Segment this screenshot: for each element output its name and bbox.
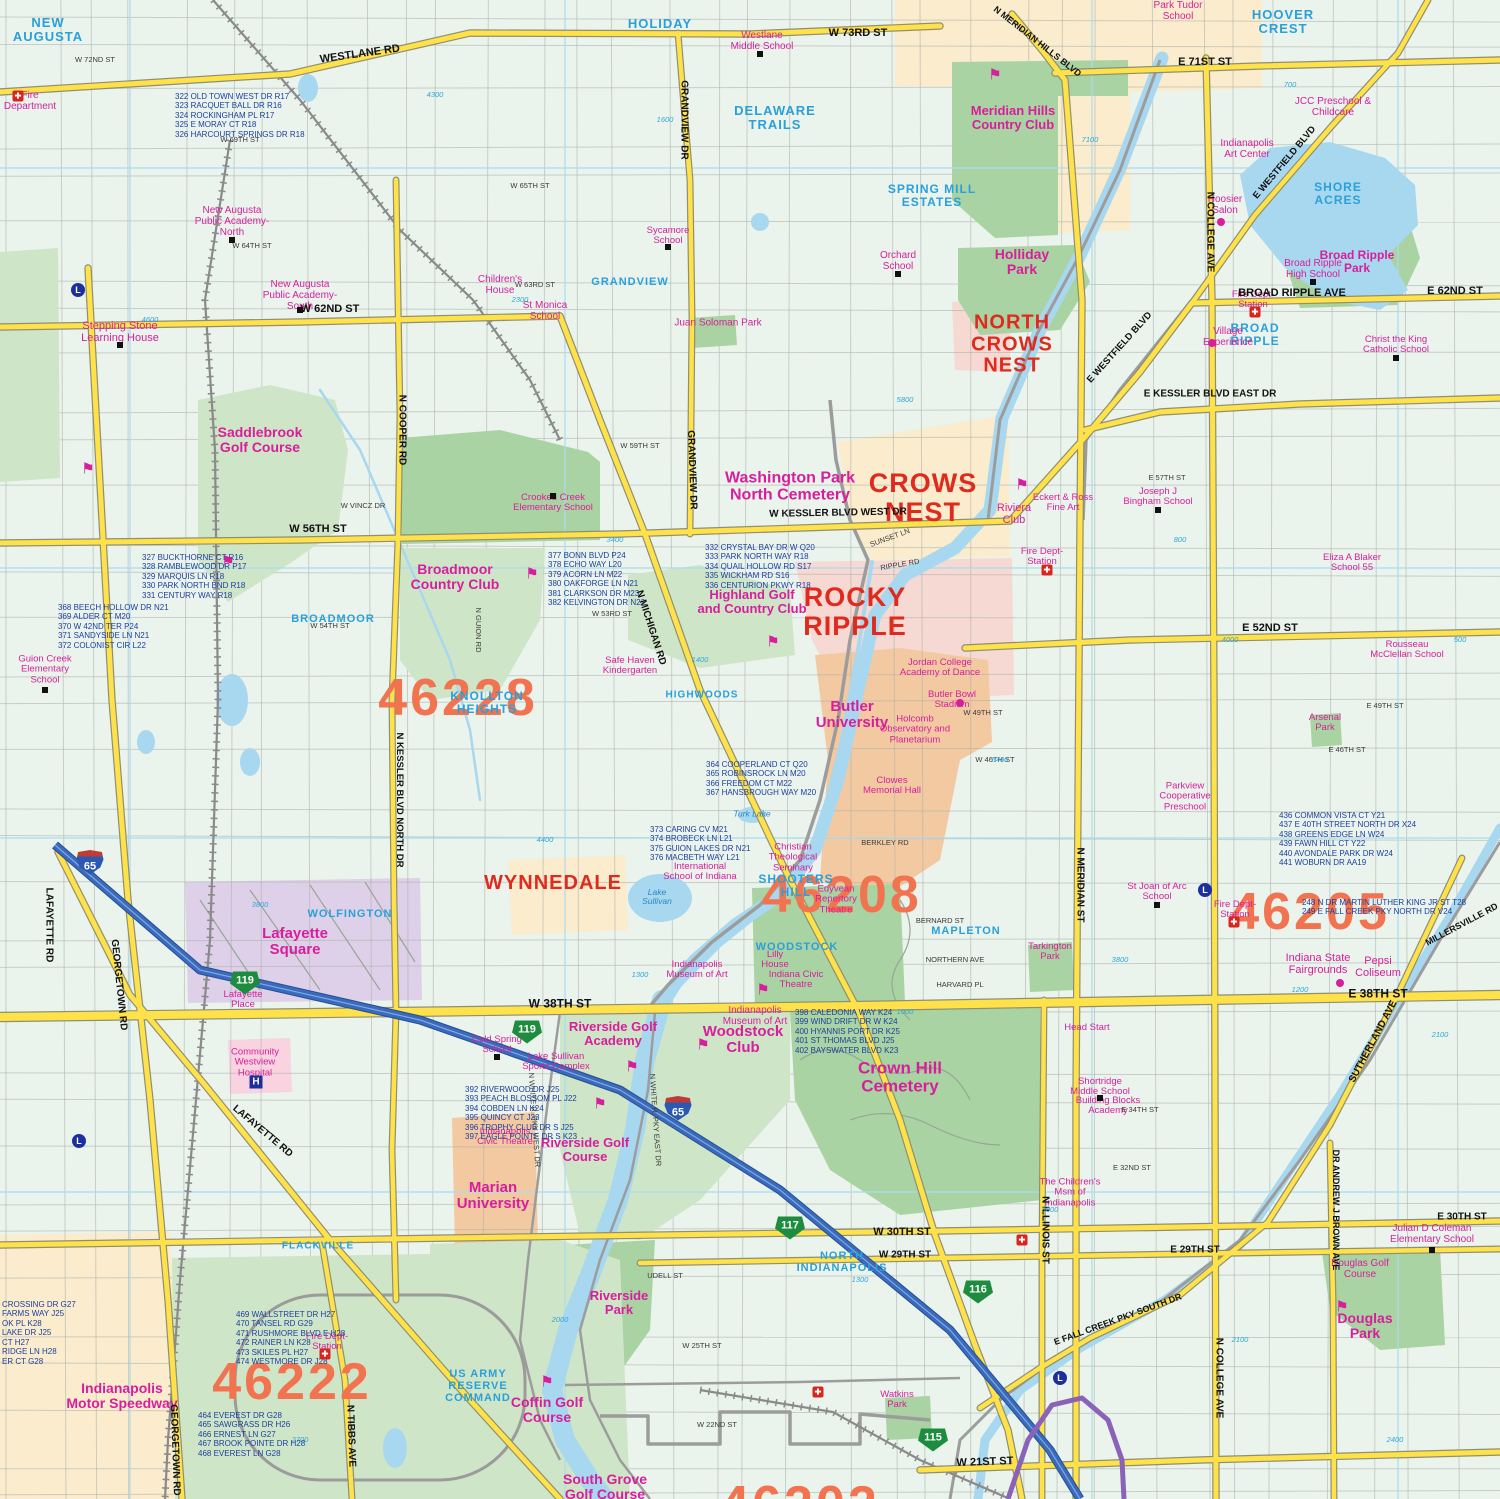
speedway-pond [383, 1428, 407, 1468]
map-base-layer [0, 0, 1500, 1499]
pond-riviera [751, 213, 769, 231]
tarkington-park-green-area [1028, 942, 1074, 992]
pond-west [137, 730, 155, 754]
speedway-town-zone-area [0, 1232, 182, 1499]
speedway-grounds-area [172, 1252, 555, 1499]
nw-green-strip-area [0, 248, 60, 482]
juan-solomon-park-area [690, 315, 737, 348]
guion-lake-b [240, 748, 260, 776]
marian-university-zone-area [452, 1112, 538, 1248]
arsenal-park-green-area [1310, 713, 1342, 747]
pond-north [298, 74, 318, 102]
n-illinois-st [1042, 1000, 1044, 1499]
westview-hospital-zone-area [228, 1038, 292, 1094]
lake-sullivan [628, 874, 692, 922]
wynnedale-zone-area [508, 855, 628, 935]
street-map-canvas[interactable]: 4622846208462054622246202NORTH CROWS NES… [0, 0, 1500, 1499]
